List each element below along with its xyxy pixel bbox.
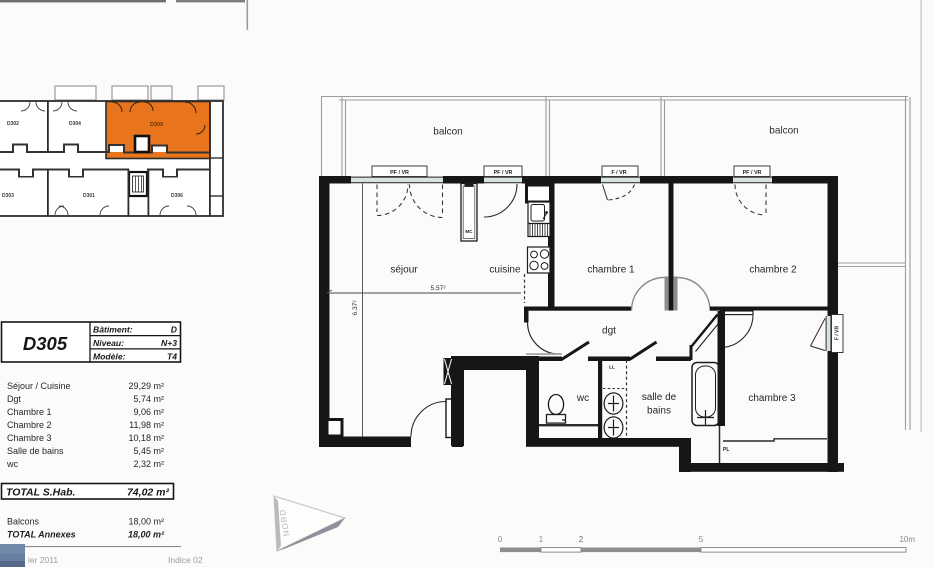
svg-text:PF / VR: PF / VR: [743, 170, 762, 176]
svg-text:Balcons: Balcons: [7, 517, 40, 527]
svg-text:bains: bains: [647, 406, 671, 417]
svg-text:D301: D301: [83, 193, 95, 199]
svg-text:chambre 2: chambre 2: [749, 265, 797, 276]
svg-text:LL: LL: [609, 365, 615, 371]
svg-text:cuisine: cuisine: [489, 265, 521, 276]
svg-text:Chambre 3: Chambre 3: [7, 433, 52, 443]
svg-text:2,32 m²: 2,32 m²: [133, 459, 164, 469]
svg-text:dgt: dgt: [602, 326, 616, 337]
svg-text:D304: D304: [69, 121, 81, 127]
svg-text:chambre 1: chambre 1: [587, 265, 635, 276]
svg-text:D303: D303: [2, 193, 14, 199]
svg-text:11,98 m²: 11,98 m²: [129, 420, 164, 430]
svg-text:chambre 3: chambre 3: [748, 393, 796, 404]
svg-text:T4: T4: [167, 352, 177, 362]
svg-text:0: 0: [498, 535, 503, 544]
svg-text:1: 1: [539, 535, 544, 544]
svg-text:Chambre 1: Chambre 1: [7, 407, 52, 417]
svg-text:PF / VR: PF / VR: [494, 170, 513, 176]
svg-text:6.37²: 6.37²: [352, 300, 359, 316]
svg-text:9,06 m²: 9,06 m²: [133, 407, 164, 417]
svg-text:salle de: salle de: [642, 392, 677, 403]
svg-text:wc: wc: [576, 393, 589, 404]
svg-text:29,29 m²: 29,29 m²: [128, 381, 164, 391]
svg-text:Salle de bains: Salle de bains: [7, 446, 64, 456]
svg-text:D305: D305: [150, 122, 163, 128]
svg-text:TOTAL S.Hab.: TOTAL S.Hab.: [6, 487, 76, 499]
svg-text:5,45 m²: 5,45 m²: [133, 446, 164, 456]
svg-text:D: D: [171, 325, 177, 335]
svg-text:Modèle:: Modèle:: [93, 352, 126, 362]
svg-text:5: 5: [699, 535, 704, 544]
svg-text:18,00 m²: 18,00 m²: [128, 517, 164, 527]
svg-text:séjour: séjour: [390, 265, 418, 276]
svg-text:Séjour / Cuisine: Séjour / Cuisine: [7, 381, 71, 391]
svg-text:D306: D306: [171, 193, 183, 199]
svg-text:Bâtiment:: Bâtiment:: [93, 325, 133, 335]
svg-text:Dgt: Dgt: [7, 394, 22, 404]
svg-text:F / VR: F / VR: [835, 326, 841, 341]
svg-text:D305: D305: [23, 333, 68, 354]
svg-text:wc: wc: [6, 459, 18, 469]
svg-text:18,00 m²: 18,00 m²: [128, 530, 165, 540]
svg-text:N+3: N+3: [161, 338, 177, 348]
svg-text:PL: PL: [723, 447, 729, 453]
svg-text:balcon: balcon: [433, 127, 462, 138]
svg-text:MC: MC: [465, 229, 473, 234]
svg-text:TOTAL Annexes: TOTAL Annexes: [7, 530, 76, 540]
svg-text:10m: 10m: [899, 535, 915, 544]
svg-text:2: 2: [579, 535, 584, 544]
svg-text:Indice 02: Indice 02: [168, 555, 203, 565]
svg-text:ier 2011: ier 2011: [28, 555, 58, 565]
svg-text:74,02 m²: 74,02 m²: [127, 487, 170, 499]
svg-text:5.57²: 5.57²: [430, 285, 446, 292]
svg-text:PF / VR: PF / VR: [390, 170, 409, 176]
svg-text:F / VR: F / VR: [611, 170, 626, 176]
svg-text:10,18 m²: 10,18 m²: [128, 433, 164, 443]
svg-text:D302: D302: [7, 121, 19, 127]
svg-text:Niveau:: Niveau:: [93, 338, 124, 348]
svg-text:Chambre 2: Chambre 2: [7, 420, 52, 430]
svg-text:5,74 m²: 5,74 m²: [133, 394, 164, 404]
svg-text:balcon: balcon: [769, 126, 798, 137]
